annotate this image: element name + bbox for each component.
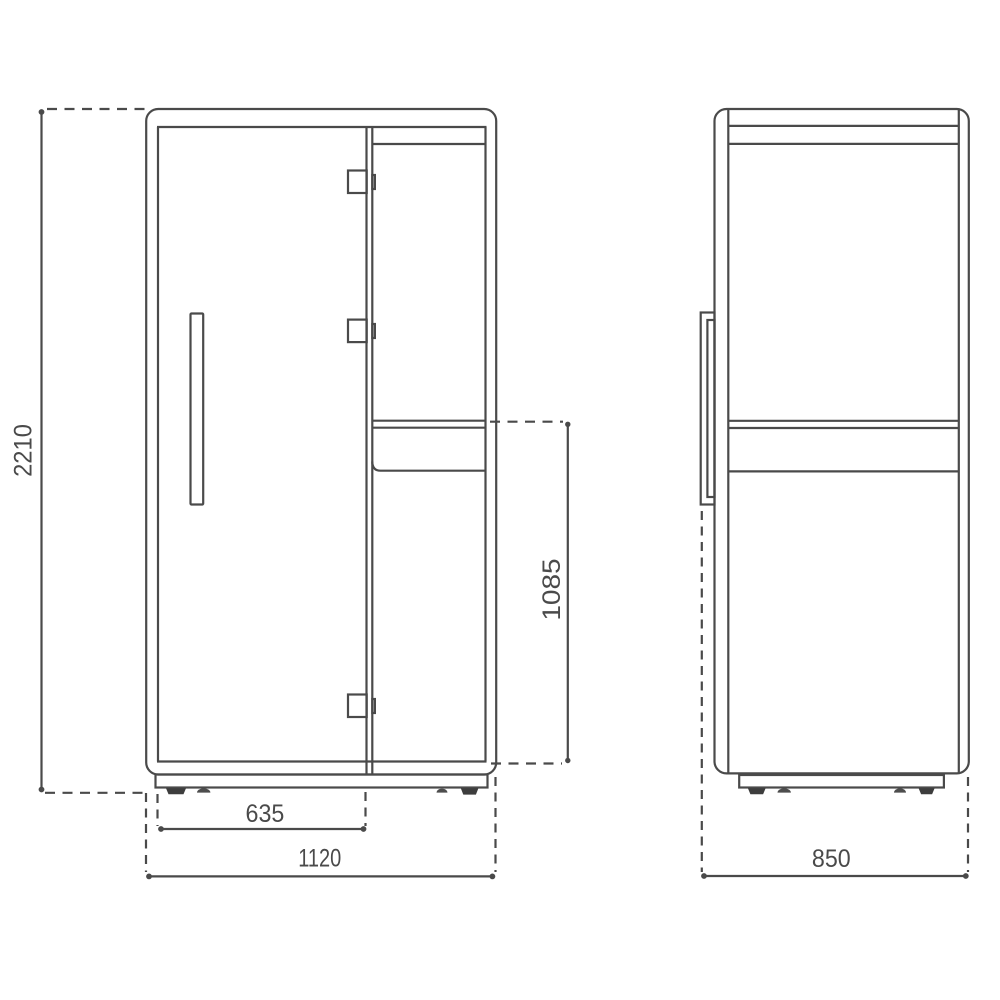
svg-text:850: 850 [812, 845, 851, 873]
svg-text:1085: 1085 [537, 558, 565, 620]
svg-text:635: 635 [246, 800, 285, 828]
svg-text:1120: 1120 [298, 844, 341, 872]
svg-text:2210: 2210 [10, 424, 38, 477]
